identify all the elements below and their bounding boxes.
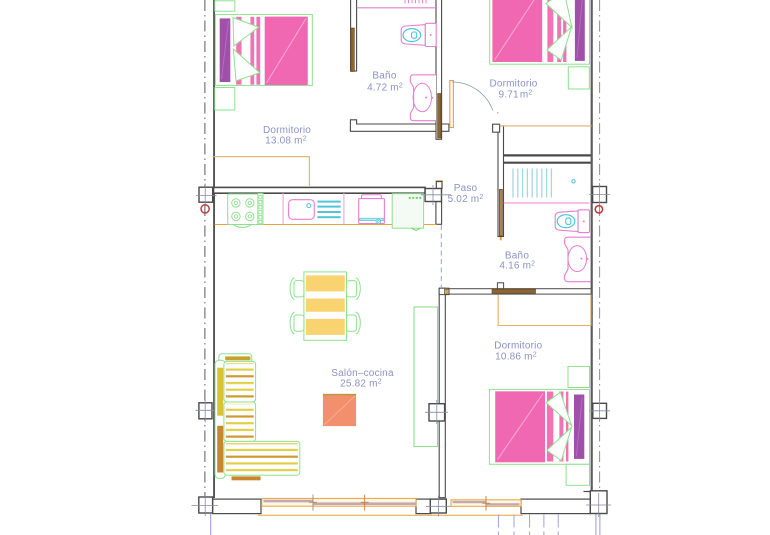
svg-text:Dormitorio: Dormitorio — [263, 125, 311, 136]
svg-text:Paso: Paso — [454, 183, 478, 194]
svg-text:9.71 m2: 9.71 m2 — [499, 89, 533, 100]
svg-text:4.16 m2: 4.16 m2 — [499, 260, 535, 271]
svg-text:Baño: Baño — [372, 70, 396, 81]
svg-text:4.72 m2: 4.72 m2 — [367, 83, 403, 94]
svg-text:Dormitorio: Dormitorio — [494, 341, 542, 352]
svg-text:Dormitorio: Dormitorio — [489, 78, 537, 89]
svg-text:10.86 m2: 10.86 m2 — [495, 352, 537, 363]
svg-text:25.82 m2: 25.82 m2 — [340, 378, 382, 389]
svg-text:13.08 m2: 13.08 m2 — [265, 136, 307, 147]
svg-text:5.02 m2: 5.02 m2 — [448, 194, 484, 205]
